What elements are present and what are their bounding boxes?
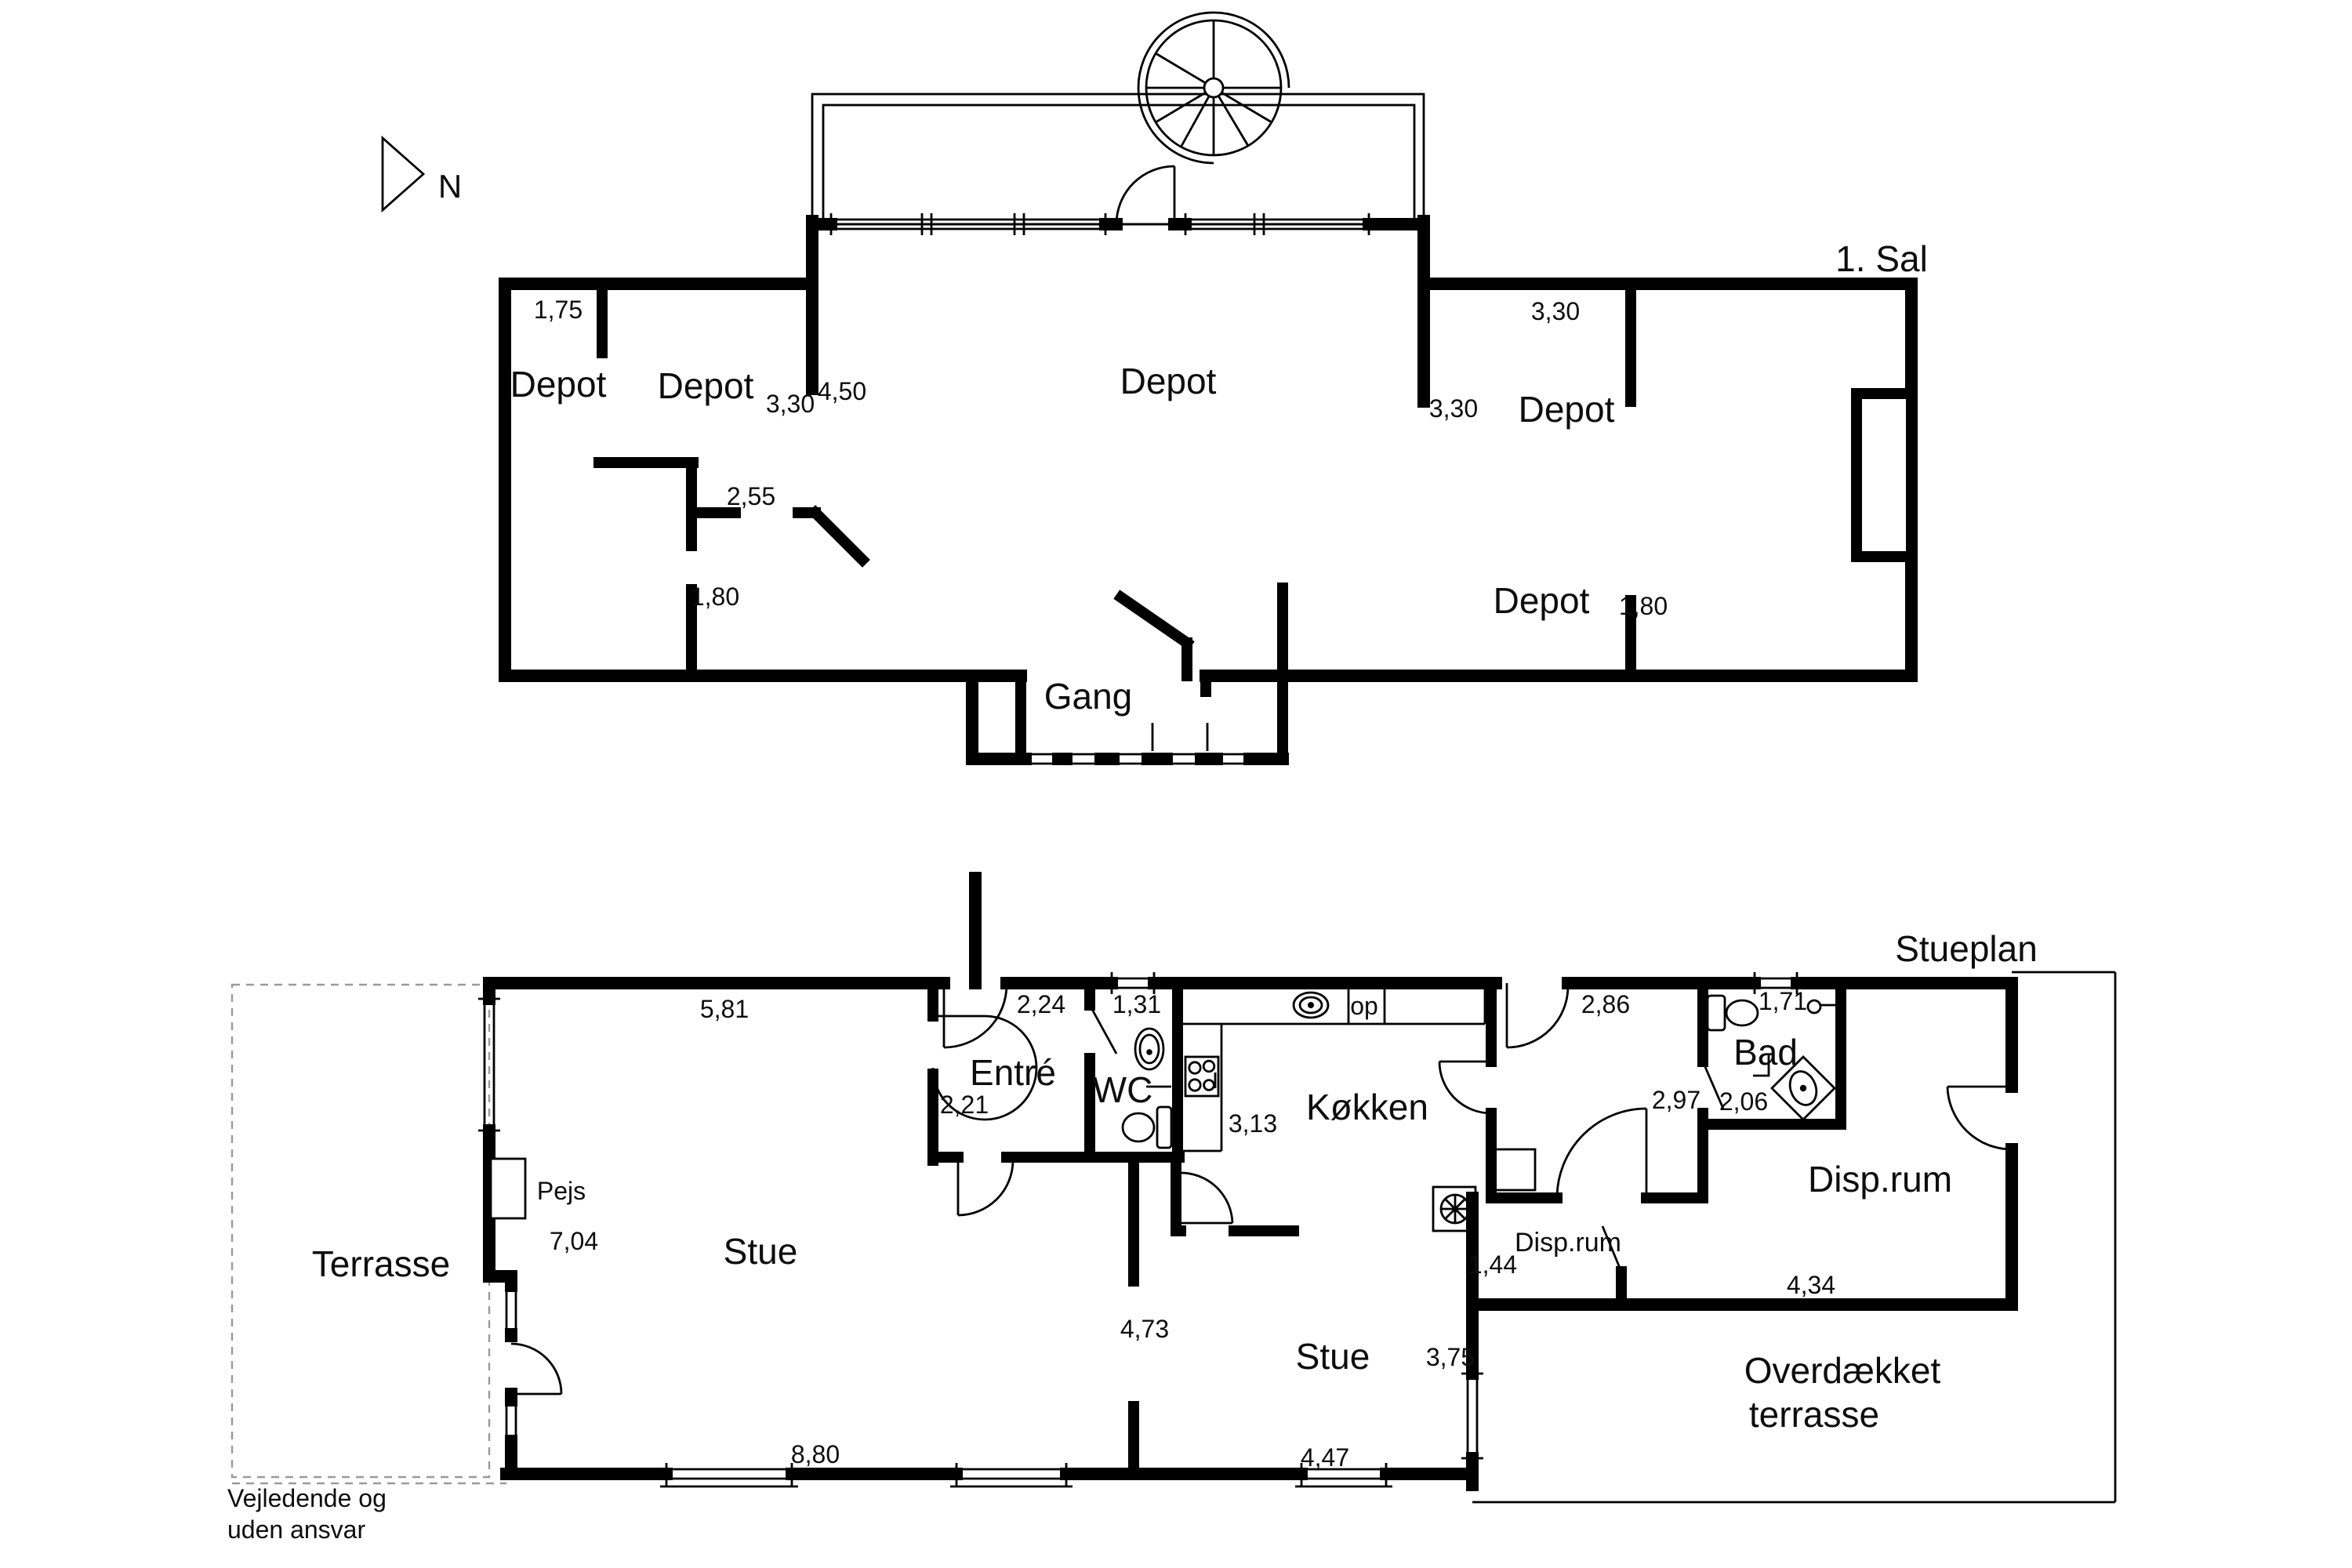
dim-1-31: 1,31 xyxy=(1112,990,1161,1018)
first-floor-plan: 1. Sal1,75DepotDepot3,304,50Depot3,303,3… xyxy=(505,13,1928,764)
dim-4-50: 4,50 xyxy=(818,377,866,405)
room-depot-5: Depot xyxy=(1494,580,1590,621)
counter-box xyxy=(1493,1149,1535,1190)
dim-1-75: 1,75 xyxy=(534,296,583,324)
room-koekken: Køkken xyxy=(1306,1087,1428,1127)
dim-1-44: 1,44 xyxy=(1468,1250,1517,1279)
dim-8-80: 8,80 xyxy=(791,1440,840,1468)
dim-5-81: 5,81 xyxy=(700,995,749,1023)
room-depot-1: Depot xyxy=(510,364,607,405)
room-depot-3: Depot xyxy=(1120,361,1217,401)
dim-3-30-b: 3,30 xyxy=(1531,297,1580,325)
dim-2-86: 2,86 xyxy=(1581,990,1630,1018)
chimney-shaft xyxy=(1857,394,1911,557)
dim-2-06: 2,06 xyxy=(1719,1087,1768,1116)
room-disprum-big: Disp.rum xyxy=(1808,1159,1952,1200)
bad-lamp-icon xyxy=(1808,1000,1838,1013)
dim-7-04: 7,04 xyxy=(550,1227,598,1255)
stove-icon xyxy=(1185,1057,1218,1096)
room-wc: WC xyxy=(1093,1069,1153,1110)
floor-plan-canvas: 1. Sal1,75DepotDepot3,304,50Depot3,303,3… xyxy=(0,0,2352,1568)
floor1-title: 1. Sal xyxy=(1835,238,1928,279)
compass-label: N xyxy=(438,168,462,205)
first-floor-labels: 1. Sal1,75DepotDepot3,304,50Depot3,303,3… xyxy=(510,238,1928,717)
footnote-line2: uden ansvar xyxy=(227,1515,365,1544)
room-stue-left: Stue xyxy=(724,1231,798,1272)
room-depot-4: Depot xyxy=(1519,389,1615,430)
ground-floor-plan: Stueplan5,812,241,312,861,71opEntréWCKøk… xyxy=(232,878,2115,1502)
dim-2-21: 2,21 xyxy=(940,1091,989,1119)
room-depot-2: Depot xyxy=(658,365,754,406)
marker-op: op xyxy=(1350,992,1378,1020)
room-stue-bottom: Stue xyxy=(1296,1336,1370,1377)
bad-toilet-icon xyxy=(1708,996,1758,1030)
marker-pejs: Pejs xyxy=(537,1177,586,1205)
dim-4-47: 4,47 xyxy=(1301,1443,1349,1472)
dim-3-30-a: 3,30 xyxy=(766,390,815,418)
floor0-title: Stueplan xyxy=(1895,928,2038,969)
fireplace-pejs xyxy=(491,1159,525,1218)
dim-3-75: 3,75 xyxy=(1426,1343,1475,1371)
footnote-line1: Vejledende og xyxy=(227,1484,387,1512)
dim-1-71: 1,71 xyxy=(1759,987,1807,1015)
room-disprum-small: Disp.rum xyxy=(1515,1228,1621,1258)
dim-3-13: 3,13 xyxy=(1229,1109,1277,1138)
room-overdaekket-line1: Overdækket xyxy=(1744,1350,1941,1391)
annotation-labels: NVejledende oguden ansvar xyxy=(227,168,462,1544)
terrace-outline xyxy=(232,985,506,1483)
dim-2-55: 2,55 xyxy=(727,482,775,510)
room-entre: Entré xyxy=(970,1052,1056,1093)
balcony-railing xyxy=(812,94,1424,224)
balcony-door xyxy=(1116,166,1174,224)
room-terrasse: Terrasse xyxy=(312,1243,450,1284)
kitchen-sink-icon xyxy=(1294,993,1328,1018)
room-gang: Gang xyxy=(1044,676,1133,717)
dim-4-73: 4,73 xyxy=(1120,1315,1169,1343)
room-overdaekket-line2: terrasse xyxy=(1749,1394,1879,1435)
compass xyxy=(383,138,423,210)
wc-toilet-icon xyxy=(1123,1107,1171,1148)
dim-4-34: 4,34 xyxy=(1787,1271,1835,1299)
north-arrow-icon xyxy=(383,138,423,210)
spiral-staircase-icon xyxy=(1138,13,1289,163)
ground-floor-interior-walls xyxy=(933,983,1841,1474)
dim-2-24: 2,24 xyxy=(1017,990,1065,1018)
dim-2-97: 2,97 xyxy=(1652,1086,1700,1114)
dim-1-80-a: 1,80 xyxy=(691,583,739,611)
dim-3-30-c: 3,30 xyxy=(1429,394,1478,423)
room-bad: Bad xyxy=(1733,1032,1798,1073)
dim-1-80-b: 1,80 xyxy=(1619,592,1668,620)
